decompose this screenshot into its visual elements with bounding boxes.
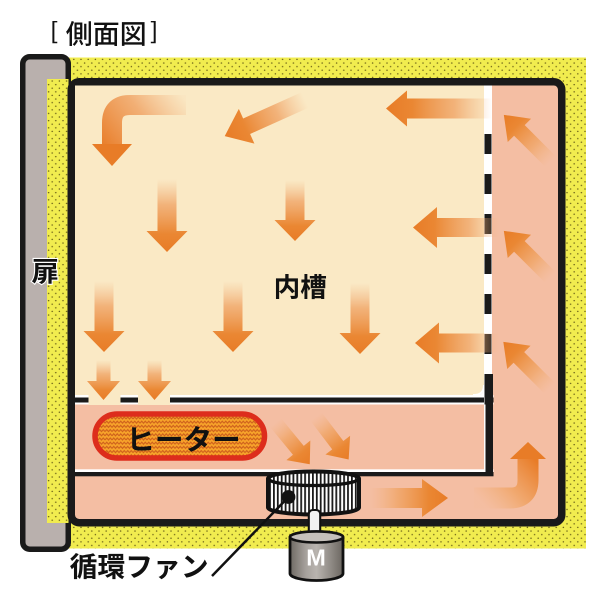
svg-text:M: M (306, 545, 326, 571)
